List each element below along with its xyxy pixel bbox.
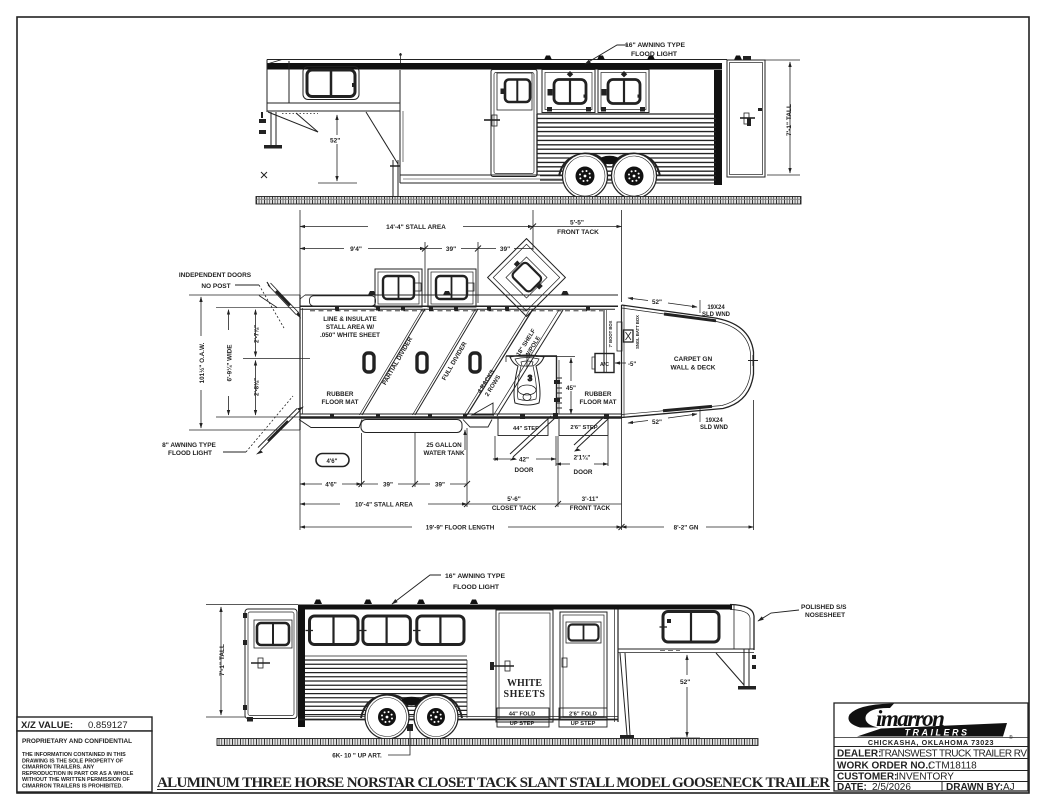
svg-text:19'-9" FLOOR LENGTH: 19'-9" FLOOR LENGTH xyxy=(426,525,495,532)
svg-text:0.859127: 0.859127 xyxy=(88,720,128,731)
svg-text:THE INFORMATION CONTAINED IN T: THE INFORMATION CONTAINED IN THIS xyxy=(22,752,126,758)
svg-text:14'-4" STALL AREA: 14'-4" STALL AREA xyxy=(386,224,446,231)
svg-text:WHITE: WHITE xyxy=(507,678,542,689)
svg-text:101½" O.A.W.: 101½" O.A.W. xyxy=(198,342,206,383)
svg-text:19X24: 19X24 xyxy=(707,305,725,311)
svg-text:19X24: 19X24 xyxy=(705,418,723,424)
svg-text:X/Z VALUE:: X/Z VALUE: xyxy=(21,720,73,731)
svg-text:DOOR: DOOR xyxy=(574,469,593,476)
svg-text:9'4": 9'4" xyxy=(350,246,362,253)
svg-text:UP STEP: UP STEP xyxy=(510,721,535,727)
svg-text:INDEPENDENT DOORS: INDEPENDENT DOORS xyxy=(179,272,252,279)
svg-text:39": 39" xyxy=(500,246,510,253)
svg-text:TRANSWEST TRUCK TRAILER RV: TRANSWEST TRUCK TRAILER RV xyxy=(879,749,1027,760)
svg-text:WITHOUT THE WRITTEN PERMISSION: WITHOUT THE WRITTEN PERMISSION OF xyxy=(22,777,131,783)
svg-text:FLOOR MAT: FLOOR MAT xyxy=(580,399,617,406)
svg-text:DEALER:: DEALER: xyxy=(837,749,881,760)
svg-text:DRAWING IS THE SOLE PROPERTY O: DRAWING IS THE SOLE PROPERTY OF xyxy=(22,758,124,764)
svg-text:52": 52" xyxy=(330,138,340,145)
svg-text:CIMARRON TRAILERS. ANY: CIMARRON TRAILERS. ANY xyxy=(22,765,95,771)
svg-text:42": 42" xyxy=(519,457,529,464)
svg-text:3'-11": 3'-11" xyxy=(582,496,599,503)
svg-text:ALUMINUM THREE HORSE NORSTAR C: ALUMINUM THREE HORSE NORSTAR CLOSET TACK… xyxy=(157,775,830,791)
svg-text:FLOOD LIGHT: FLOOD LIGHT xyxy=(631,51,678,58)
svg-text:FLOOD LIGHT: FLOOD LIGHT xyxy=(453,584,500,591)
svg-text:2'-7⅞": 2'-7⅞" xyxy=(255,325,261,343)
svg-text:7' BOOT BOX: 7' BOOT BOX xyxy=(608,320,613,347)
svg-text:DOOR: DOOR xyxy=(515,467,534,474)
svg-text:DATE:: DATE: xyxy=(837,782,867,793)
svg-text:WORK ORDER NO.:: WORK ORDER NO.: xyxy=(837,761,931,772)
svg-text:2'1¾": 2'1¾" xyxy=(574,454,591,462)
svg-text:AJ: AJ xyxy=(1003,782,1015,793)
svg-text:NOSESHEET: NOSESHEET xyxy=(805,612,845,619)
svg-text:PROPRIETARY AND CONFIDENTIAL: PROPRIETARY AND CONFIDENTIAL xyxy=(22,738,132,745)
svg-text:CIMARRON TRAILERS IS PROHIBITE: CIMARRON TRAILERS IS PROHIBITED. xyxy=(22,784,123,790)
svg-text:SNGL BATT BOX: SNGL BATT BOX xyxy=(635,315,640,349)
svg-text:8" AWNING TYPE: 8" AWNING TYPE xyxy=(162,442,216,449)
svg-text:INVENTORY: INVENTORY xyxy=(896,772,954,783)
svg-text:16" AWNING TYPE: 16" AWNING TYPE xyxy=(625,42,685,49)
svg-text:44" FOLD: 44" FOLD xyxy=(509,712,536,718)
svg-text:5'-5": 5'-5" xyxy=(570,220,584,227)
svg-text:2'6" STEP: 2'6" STEP xyxy=(570,425,597,431)
svg-text:DRAWN BY:: DRAWN BY: xyxy=(946,782,1003,793)
svg-text:39": 39" xyxy=(383,482,393,489)
svg-text:REPRODUCTION IN PART OR AS A W: REPRODUCTION IN PART OR AS A WHOLE xyxy=(22,771,134,777)
svg-text:6K- 10 " UP ART.: 6K- 10 " UP ART. xyxy=(332,753,382,760)
svg-text:6'-9¼" WIDE: 6'-9¼" WIDE xyxy=(226,344,234,381)
svg-text:39": 39" xyxy=(446,246,456,253)
svg-text:2'-8⅜": 2'-8⅜" xyxy=(255,378,261,396)
svg-text:-5": -5" xyxy=(628,362,636,368)
svg-text:RUBBER: RUBBER xyxy=(585,391,612,398)
svg-text:25 GALLON: 25 GALLON xyxy=(426,442,462,449)
svg-text:SLD WND: SLD WND xyxy=(702,312,731,318)
svg-text:CLOSET TACK: CLOSET TACK xyxy=(492,505,537,512)
svg-text:4'6": 4'6" xyxy=(325,482,337,489)
svg-text:CARPET GN: CARPET GN xyxy=(674,356,713,363)
svg-text:16" AWNING TYPE: 16" AWNING TYPE xyxy=(445,573,505,580)
svg-text:2/5/2026: 2/5/2026 xyxy=(872,782,911,793)
svg-text:7'-1" TALL: 7'-1" TALL xyxy=(219,644,226,676)
svg-text:STALL AREA W/: STALL AREA W/ xyxy=(326,324,375,331)
svg-text:SLD WND: SLD WND xyxy=(700,425,729,431)
svg-text:39": 39" xyxy=(435,482,445,489)
svg-text:FRONT TACK: FRONT TACK xyxy=(570,505,611,512)
svg-text:CTM18118: CTM18118 xyxy=(928,761,977,772)
svg-text:8'-2" GN: 8'-2" GN xyxy=(674,525,699,532)
svg-text:A/C: A/C xyxy=(600,362,609,368)
svg-text:2'6" FOLD: 2'6" FOLD xyxy=(569,712,597,718)
svg-text:44" STEP: 44" STEP xyxy=(513,426,539,432)
svg-text:FRONT TACK: FRONT TACK xyxy=(557,229,599,236)
svg-text:UP STEP: UP STEP xyxy=(571,721,596,727)
svg-text:CUSTOMER:: CUSTOMER: xyxy=(837,772,897,783)
svg-text:POLISHED S/S: POLISHED S/S xyxy=(801,604,847,611)
svg-text:52": 52" xyxy=(652,299,662,306)
svg-text:3: 3 xyxy=(528,374,533,383)
svg-text:5'-6": 5'-6" xyxy=(507,496,521,503)
svg-text:7'-1" TALL: 7'-1" TALL xyxy=(786,104,793,136)
svg-text:CHICKASHA, OKLAHOMA 73023: CHICKASHA, OKLAHOMA 73023 xyxy=(868,738,994,747)
svg-text:NO POST: NO POST xyxy=(201,283,230,290)
svg-text:.050" WHITE SHEET: .050" WHITE SHEET xyxy=(320,332,380,339)
svg-text:SHEETS: SHEETS xyxy=(504,689,546,700)
svg-text:LINE & INSULATE: LINE & INSULATE xyxy=(323,316,376,323)
svg-text:RUBBER: RUBBER xyxy=(327,391,354,398)
svg-text:WALL & DECK: WALL & DECK xyxy=(670,365,715,372)
svg-text:TRAILERS: TRAILERS xyxy=(905,728,970,738)
svg-text:FLOOD LIGHT: FLOOD LIGHT xyxy=(168,450,212,457)
svg-text:52": 52" xyxy=(680,679,690,686)
svg-text:45": 45" xyxy=(566,385,576,392)
svg-text:52": 52" xyxy=(652,419,662,426)
svg-text:4'6": 4'6" xyxy=(327,459,338,465)
svg-text:10'-4" STALL AREA: 10'-4" STALL AREA xyxy=(355,502,413,509)
svg-text:WATER TANK: WATER TANK xyxy=(423,450,464,457)
svg-text:FLOOR MAT: FLOOR MAT xyxy=(322,399,359,406)
